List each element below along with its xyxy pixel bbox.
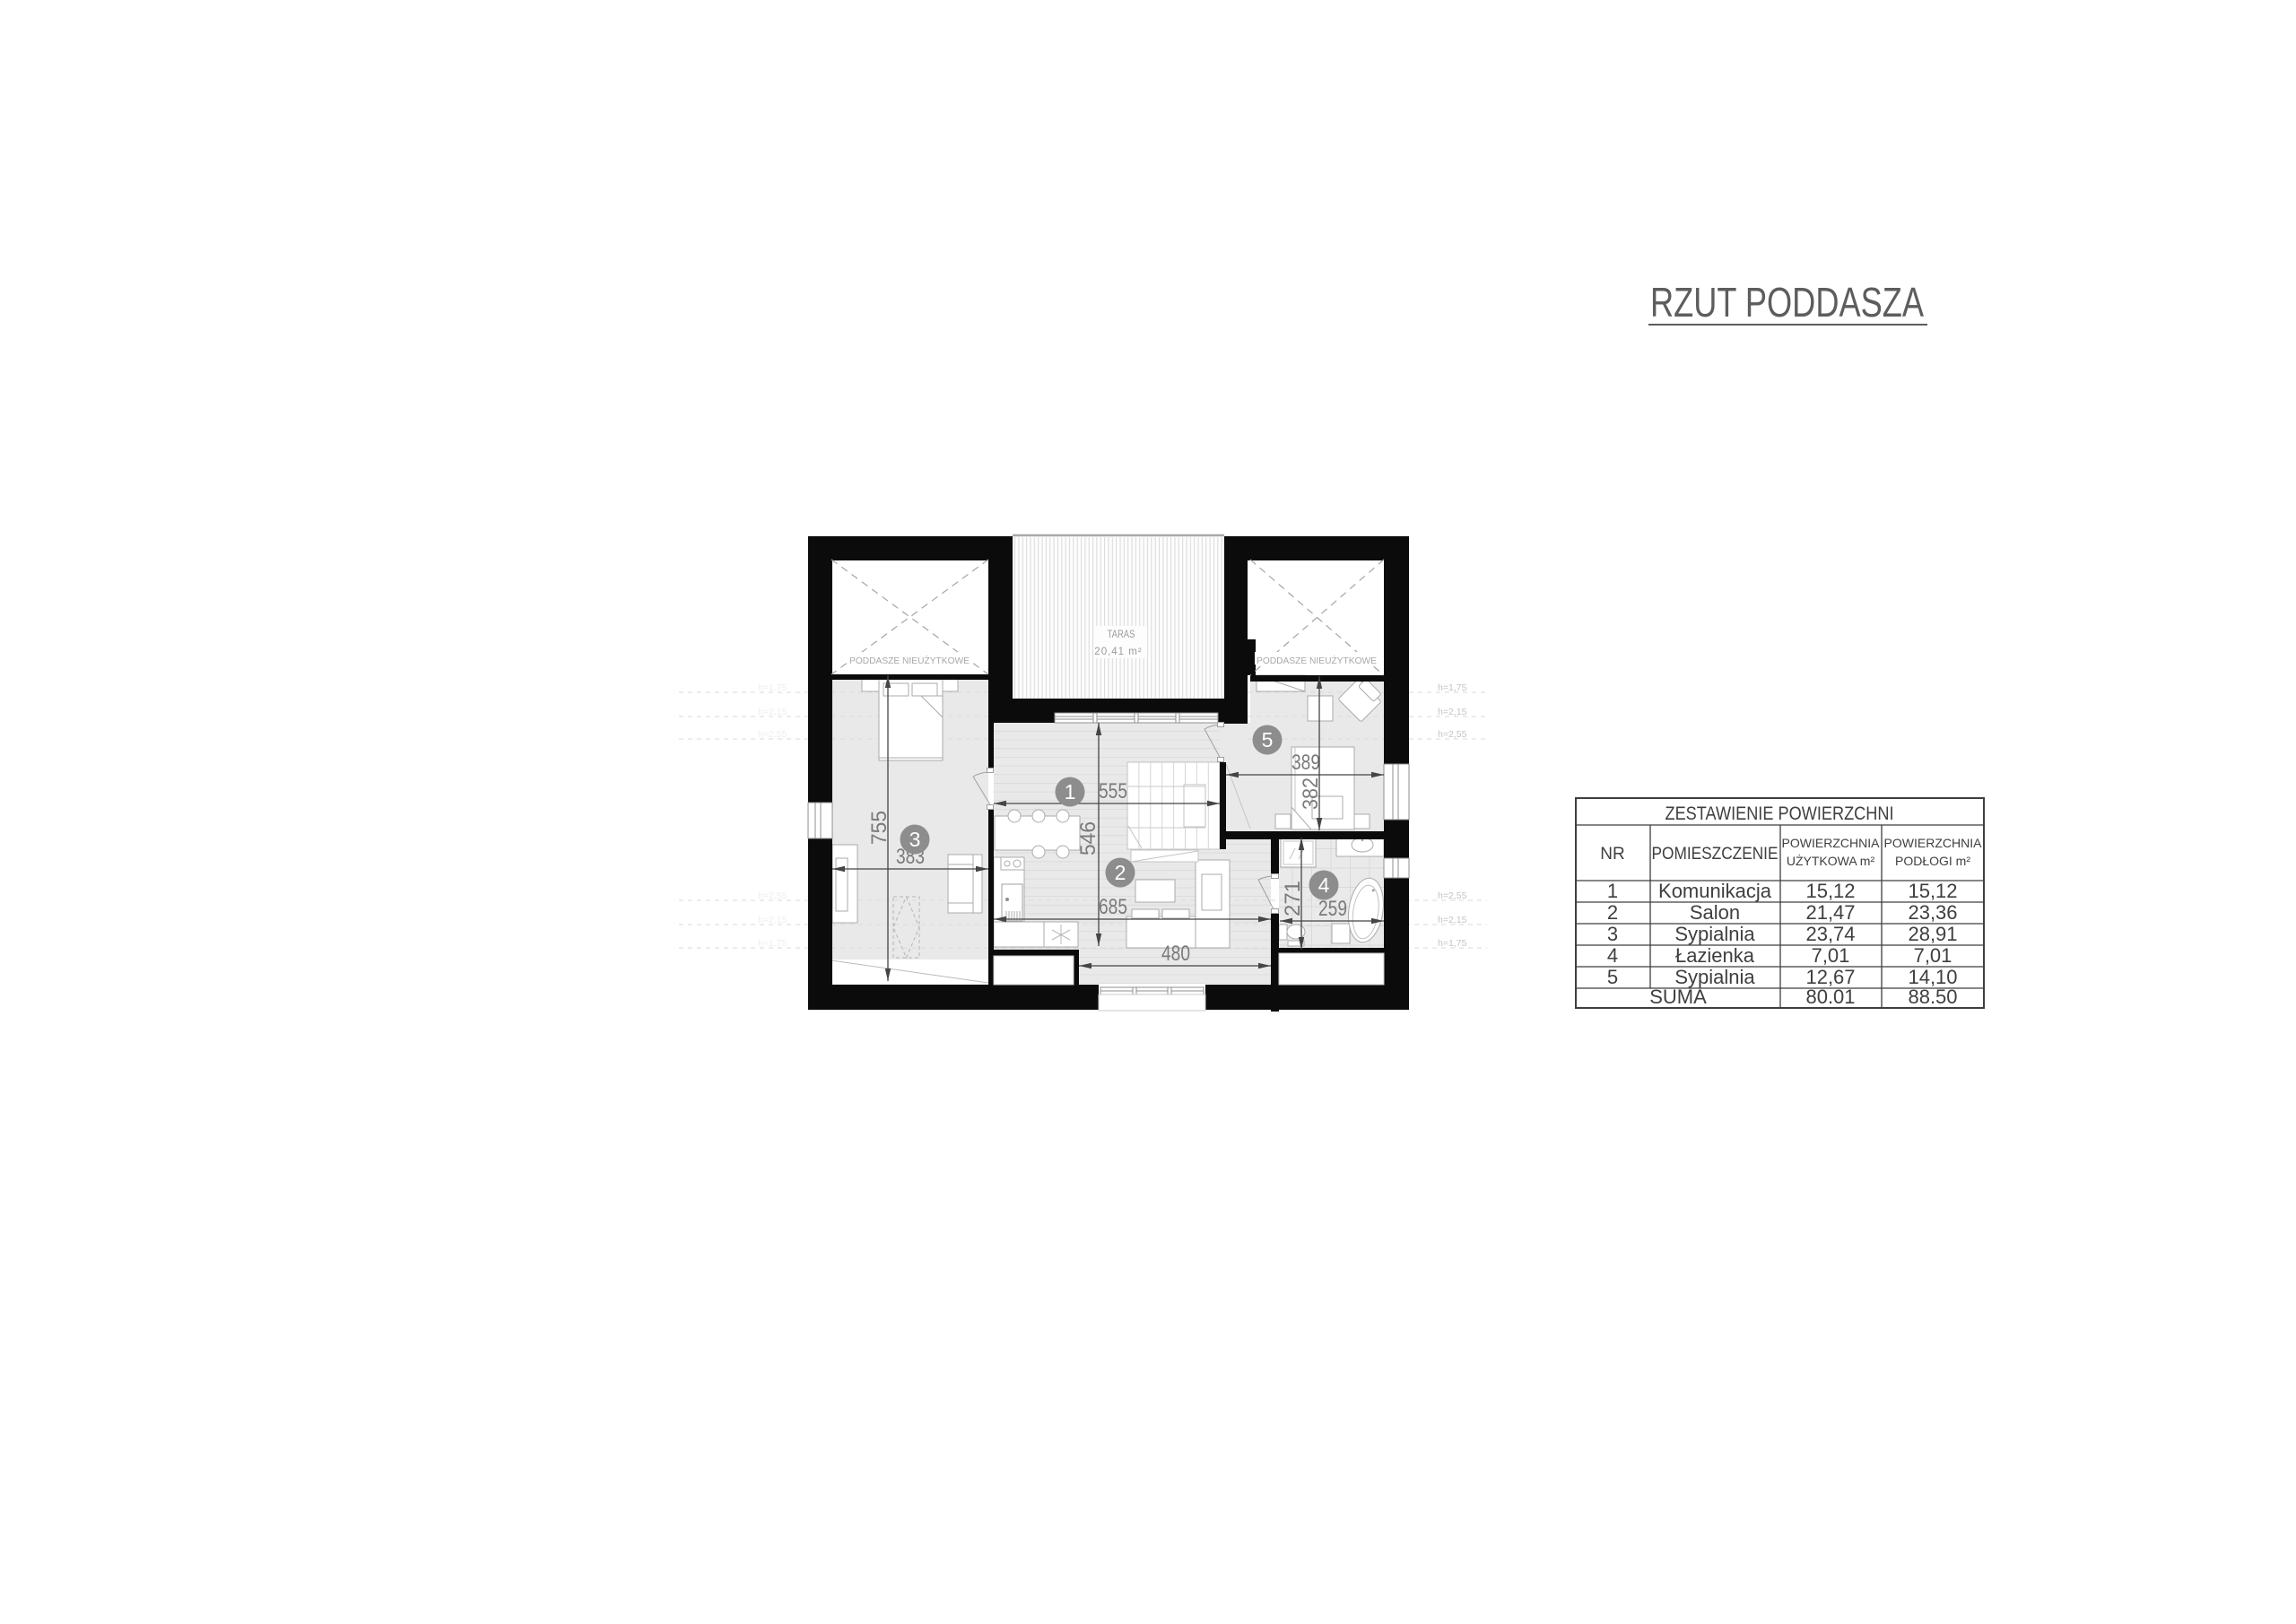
svg-text:15,12: 15,12: [1908, 880, 1957, 902]
svg-text:5: 5: [1607, 966, 1618, 988]
svg-text:2: 2: [1607, 901, 1618, 924]
svg-text:21,47: 21,47: [1805, 901, 1855, 924]
svg-text:h=1,75: h=1,75: [758, 682, 787, 693]
svg-text:h=2,55: h=2,55: [1438, 890, 1467, 901]
svg-text:4: 4: [1607, 944, 1618, 967]
svg-text:Salon: Salon: [1690, 901, 1740, 924]
svg-text:Sypialnia: Sypialnia: [1674, 923, 1755, 945]
svg-text:7,01: 7,01: [1914, 944, 1952, 967]
svg-text:480: 480: [1161, 942, 1190, 966]
svg-text:5: 5: [1262, 728, 1274, 751]
svg-text:h=2,15: h=2,15: [1438, 915, 1467, 925]
svg-text:NR: NR: [1600, 845, 1624, 864]
svg-text:h=1,75: h=1,75: [1438, 682, 1467, 693]
svg-text:SUMA: SUMA: [1649, 986, 1707, 1008]
svg-text:h=2,55: h=2,55: [1438, 729, 1467, 740]
svg-text:h=2,55: h=2,55: [758, 890, 787, 901]
svg-text:7,01: 7,01: [1812, 944, 1850, 967]
svg-text:Łazienka: Łazienka: [1675, 944, 1755, 967]
svg-text:h=2,15: h=2,15: [758, 707, 787, 717]
svg-text:3: 3: [909, 828, 921, 851]
svg-text:h=1,75: h=1,75: [758, 938, 787, 949]
svg-text:POWIERZCHNIA: POWIERZCHNIA: [1782, 836, 1881, 850]
svg-text:685: 685: [1099, 895, 1127, 919]
svg-text:PODDASZE NIEUŻYTKOWE: PODDASZE NIEUŻYTKOWE: [849, 655, 970, 666]
svg-text:PODŁOGI m²: PODŁOGI m²: [1895, 854, 1970, 868]
svg-text:546: 546: [1076, 821, 1100, 855]
svg-text:POMIESZCZENIE: POMIESZCZENIE: [1652, 845, 1779, 864]
svg-text:15,12: 15,12: [1805, 880, 1855, 902]
svg-text:Komunikacja: Komunikacja: [1658, 880, 1772, 902]
svg-text:h=2,55: h=2,55: [758, 729, 787, 740]
svg-text:TARAS: TARAS: [1108, 630, 1135, 640]
svg-text:2: 2: [1115, 861, 1126, 884]
svg-text:RZUT PODDASZA: RZUT PODDASZA: [1650, 279, 1924, 326]
svg-text:POWIERZCHNIA: POWIERZCHNIA: [1884, 836, 1983, 850]
svg-text:389: 389: [1291, 751, 1320, 775]
svg-text:88.50: 88.50: [1908, 986, 1957, 1008]
svg-text:382: 382: [1299, 777, 1323, 810]
svg-text:20,41 m²: 20,41 m²: [1094, 647, 1142, 657]
svg-text:h=1,75: h=1,75: [1438, 938, 1467, 949]
svg-text:ZESTAWIENIE POWIERZCHNI: ZESTAWIENIE POWIERZCHNI: [1665, 803, 1894, 824]
svg-text:271: 271: [1281, 881, 1305, 916]
svg-text:1: 1: [1065, 780, 1076, 803]
svg-text:80.01: 80.01: [1805, 986, 1855, 1008]
svg-text:UŻYTKOWA m²: UŻYTKOWA m²: [1787, 853, 1875, 868]
svg-text:h=2,15: h=2,15: [1438, 707, 1467, 717]
svg-text:3: 3: [1607, 923, 1618, 945]
svg-text:28,91: 28,91: [1908, 923, 1957, 945]
svg-text:23,36: 23,36: [1908, 901, 1957, 924]
svg-text:PODDASZE NIEUŻYTKOWE: PODDASZE NIEUŻYTKOWE: [1257, 655, 1377, 666]
svg-text:23,74: 23,74: [1805, 923, 1855, 945]
svg-text:1: 1: [1607, 880, 1618, 902]
svg-text:259: 259: [1318, 897, 1347, 921]
svg-text:h=2,15: h=2,15: [758, 915, 787, 925]
svg-text:755: 755: [867, 811, 891, 845]
svg-text:4: 4: [1318, 873, 1330, 897]
svg-text:555: 555: [1099, 779, 1127, 803]
